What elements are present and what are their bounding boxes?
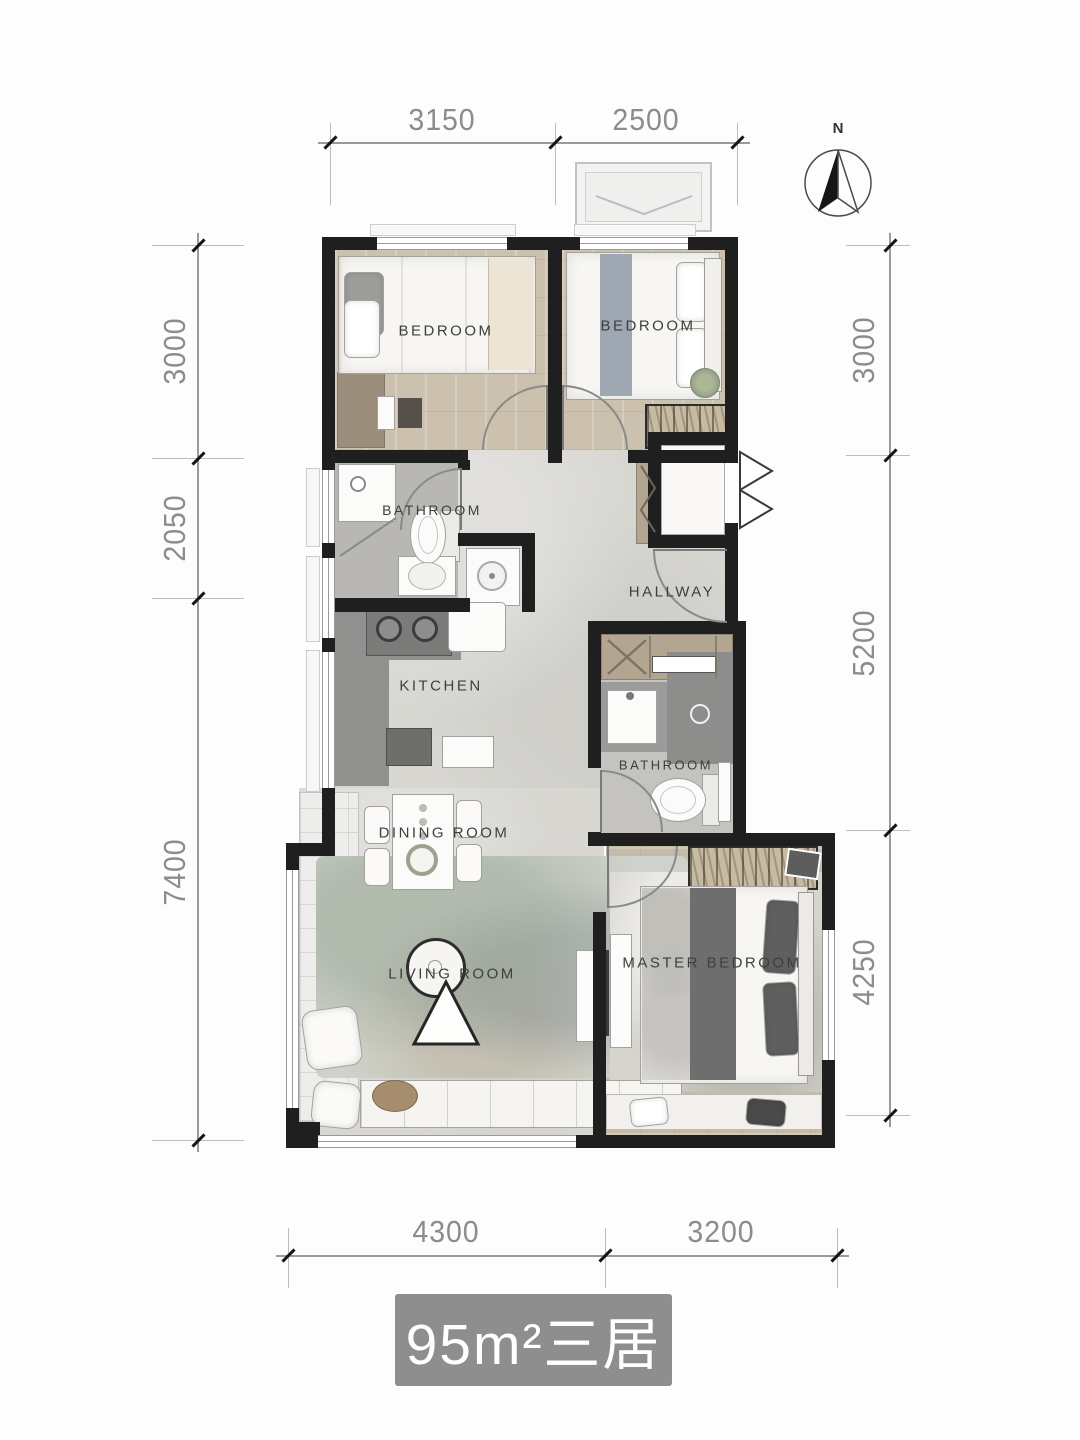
room-label-dining: DINING ROOM [379,825,510,842]
compass-icon [805,150,871,216]
room-label-bathroom: BATHROOM [382,502,482,518]
room-label-bathroom-2: BATHROOM [619,758,713,773]
floor-lamp-icon [414,982,478,1044]
dim-top-1: 3150 [408,102,475,138]
dim-bottom-2: 3200 [687,1214,754,1250]
dim-right-2: 5200 [846,609,882,676]
room-label-bedroom-left: BEDROOM [398,323,493,340]
bay-window-fold-lines [596,196,692,214]
shower-glass-line [340,518,396,556]
room-label-bedroom-right: BEDROOM [600,318,695,335]
dim-right-3: 4250 [846,938,882,1005]
plan-detail-overlay [0,0,1080,1440]
dim-top-2: 2500 [612,102,679,138]
room-label-master: MASTER BEDROOM [622,955,801,972]
dim-bottom-1: 4300 [412,1214,479,1250]
room-label-living: LIVING ROOM [388,966,516,983]
shoe-cabinet-zigzag [641,466,655,532]
title-plate-text: 95m²三居 [406,1299,662,1381]
floor-plan-canvas: BEDROOM BEDROOM BATHROOM KITCHEN HALLWAY… [0,0,1080,1440]
dim-left-3: 7400 [157,838,193,905]
room-label-hallway: HALLWAY [629,584,715,601]
room-label-kitchen: KITCHEN [399,678,482,695]
dim-right-1: 3000 [846,316,882,383]
dim-left-1: 3000 [157,317,193,384]
laundry-x-mark [608,636,716,678]
entry-door-swing-icon [740,452,772,528]
title-plate: 95m²三居 [395,1294,672,1386]
compass-north-label: N [826,120,850,140]
dim-left-2: 2050 [157,494,193,561]
